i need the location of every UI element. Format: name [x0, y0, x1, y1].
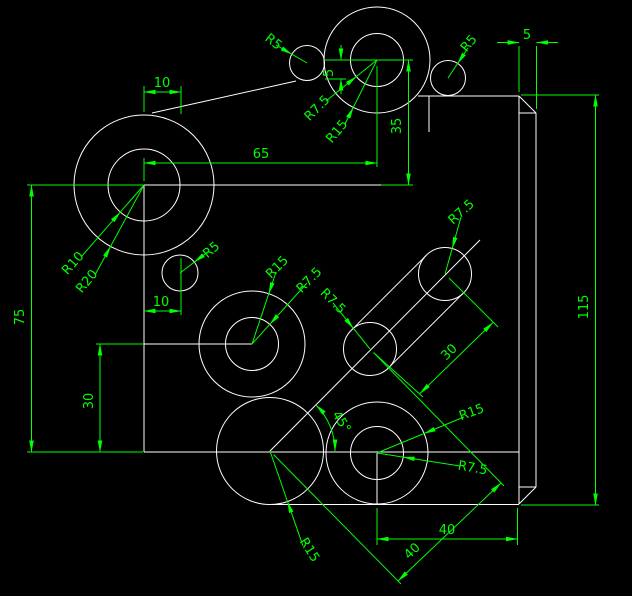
- cad-canvas[interactable]: 10 65 35 5 5 115 75 30 10 30 40 40 45° R…: [0, 0, 632, 596]
- dim-label-5-bar: 5: [523, 28, 531, 43]
- cad-drawing: 10 65 35 5 5 115 75 30 10 30 40 40 45° R…: [0, 0, 632, 596]
- dimension-geometry: [27, 43, 599, 585]
- dim-label-75: 75: [13, 309, 28, 326]
- dim-label-10-top: 10: [154, 76, 171, 91]
- radius-label-r15-bottomright: R15: [457, 401, 486, 424]
- radius-label-r15-mid: R15: [263, 253, 292, 282]
- radius-label-r75-slot-lower: R7.5: [317, 286, 349, 318]
- radius-label-r5-topleft: R5: [262, 31, 285, 53]
- radius-label-r5-mid: R5: [200, 239, 223, 262]
- dim-label-30-slot: 30: [438, 341, 460, 363]
- dim-label-65: 65: [253, 147, 270, 162]
- slot-tangent-upper: [351, 255, 426, 330]
- radius-label-r5-topright: R5: [458, 32, 481, 55]
- radius-label-r15-bottomcenter: R15: [296, 535, 322, 565]
- radius-label-r75-bottomright: R7.5: [457, 459, 489, 479]
- dim-label-10-mid: 10: [153, 295, 170, 310]
- radius-label-r75-top-inner: R7.5: [302, 93, 334, 125]
- dim-label-115: 115: [577, 295, 592, 320]
- dim-label-5-left: 5: [322, 69, 337, 77]
- radius-label-r75-slot-upper: R7.5: [446, 197, 478, 228]
- radius-label-r15-top-outer: R15: [323, 117, 351, 146]
- bar-top-chamfer: [519, 96, 536, 113]
- bar-bottom-chamfer: [519, 487, 536, 504]
- dim-label-30-left: 30: [82, 393, 97, 410]
- tangent-top-left: [152, 81, 296, 113]
- part-geometry: [74, 7, 536, 505]
- dim-label-40-horiz: 40: [439, 523, 456, 538]
- dim-label-35: 35: [390, 118, 405, 135]
